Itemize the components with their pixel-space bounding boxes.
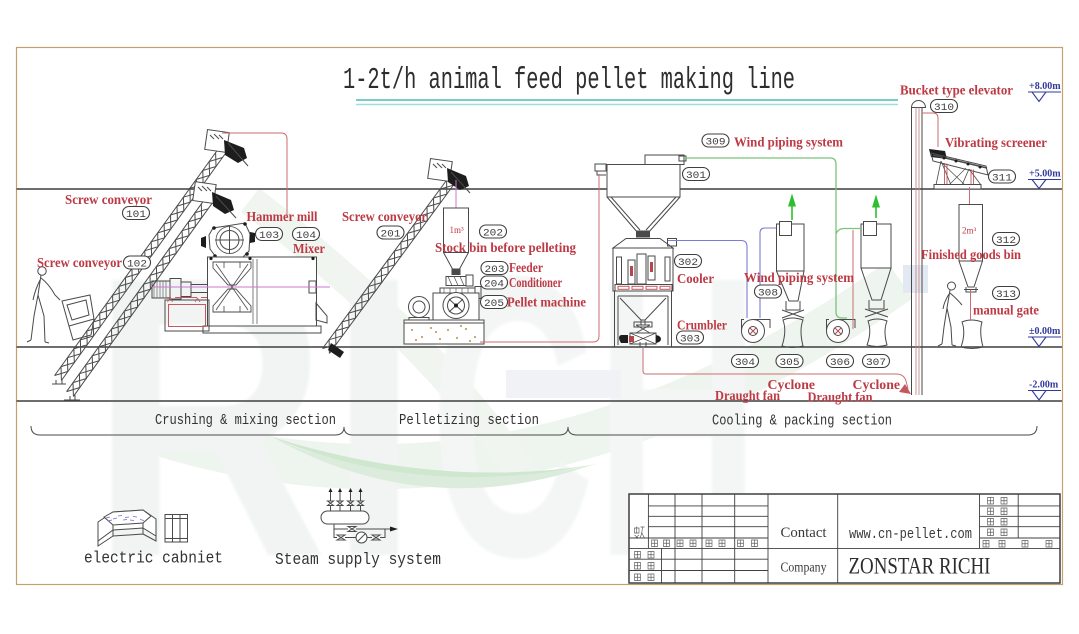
svg-text:Vibrating screener: Vibrating screener [945, 135, 1047, 150]
svg-text:Bucket type elevator: Bucket type elevator [900, 83, 1013, 98]
svg-text:Stock bin before pelleting: Stock bin before pelleting [435, 240, 576, 255]
svg-text:204: 204 [484, 278, 504, 290]
svg-text:Draught fan: Draught fan [715, 388, 780, 403]
svg-text:104: 104 [296, 230, 316, 242]
svg-text:Crushing & mixing section: Crushing & mixing section [155, 412, 336, 429]
svg-text:+5.00m: +5.00m [1029, 169, 1061, 180]
svg-text:101: 101 [126, 209, 146, 221]
svg-text:Screw conveyor: Screw conveyor [65, 192, 152, 207]
svg-text:312: 312 [996, 235, 1016, 247]
svg-text:+8.00m: +8.00m [1029, 81, 1061, 92]
svg-text:Steam supply system: Steam supply system [275, 551, 441, 570]
svg-text:304: 304 [735, 357, 755, 369]
svg-text:Wind piping system: Wind piping system [744, 270, 855, 285]
svg-text:308: 308 [758, 287, 778, 299]
svg-text:Draught fan: Draught fan [808, 390, 873, 405]
svg-text:Pellet machine: Pellet machine [507, 295, 586, 310]
svg-text:Conditioner: Conditioner [509, 275, 562, 290]
svg-text:203: 203 [485, 264, 505, 276]
svg-text:311: 311 [992, 172, 1012, 184]
svg-text:201: 201 [381, 228, 401, 240]
svg-text:1-2t/h animal feed pellet maki: 1-2t/h animal feed pellet making line [343, 63, 795, 98]
svg-text:307: 307 [866, 357, 886, 369]
svg-text:313: 313 [996, 289, 1016, 301]
svg-text:310: 310 [934, 102, 954, 114]
svg-text:202: 202 [483, 227, 503, 239]
svg-text:305: 305 [780, 357, 800, 369]
svg-text:www.cn-pellet.com: www.cn-pellet.com [849, 527, 972, 543]
svg-text:manual gate: manual gate [973, 303, 1039, 318]
svg-text:Hammer mill: Hammer mill [247, 209, 318, 224]
svg-text:Cooler: Cooler [677, 271, 714, 286]
svg-text:Pelletizing section: Pelletizing section [399, 412, 539, 429]
svg-text:303: 303 [680, 333, 700, 345]
svg-text:Contact: Contact [781, 525, 827, 541]
svg-text:302: 302 [678, 257, 698, 269]
svg-text:ZONSTAR RICHI: ZONSTAR RICHI [849, 554, 991, 579]
svg-text:205: 205 [484, 298, 504, 310]
svg-text:±0.00m: ±0.00m [1029, 326, 1061, 337]
svg-text:Crumbler: Crumbler [677, 318, 727, 333]
svg-text:Cooling & packing section: Cooling & packing section [712, 413, 892, 430]
svg-text:electric cabniet: electric cabniet [84, 550, 223, 569]
svg-text:Mixer: Mixer [293, 241, 325, 256]
svg-text:Wind piping system: Wind piping system [734, 135, 844, 150]
svg-text:Finished goods bin: Finished goods bin [921, 247, 1021, 262]
svg-text:Screw conveyor: Screw conveyor [342, 209, 427, 224]
svg-text:102: 102 [127, 258, 147, 270]
svg-text:Feeder: Feeder [509, 260, 543, 275]
svg-text:309: 309 [706, 136, 726, 148]
svg-text:1m³: 1m³ [450, 225, 465, 235]
svg-text:306: 306 [830, 357, 850, 369]
svg-text:Screw conveyor: Screw conveyor [37, 255, 122, 270]
svg-text:2m³: 2m³ [962, 226, 977, 236]
svg-text:Company: Company [781, 561, 827, 576]
svg-text:103: 103 [259, 230, 279, 242]
svg-text:301: 301 [686, 170, 706, 182]
svg-text:-2.00m: -2.00m [1029, 380, 1059, 391]
